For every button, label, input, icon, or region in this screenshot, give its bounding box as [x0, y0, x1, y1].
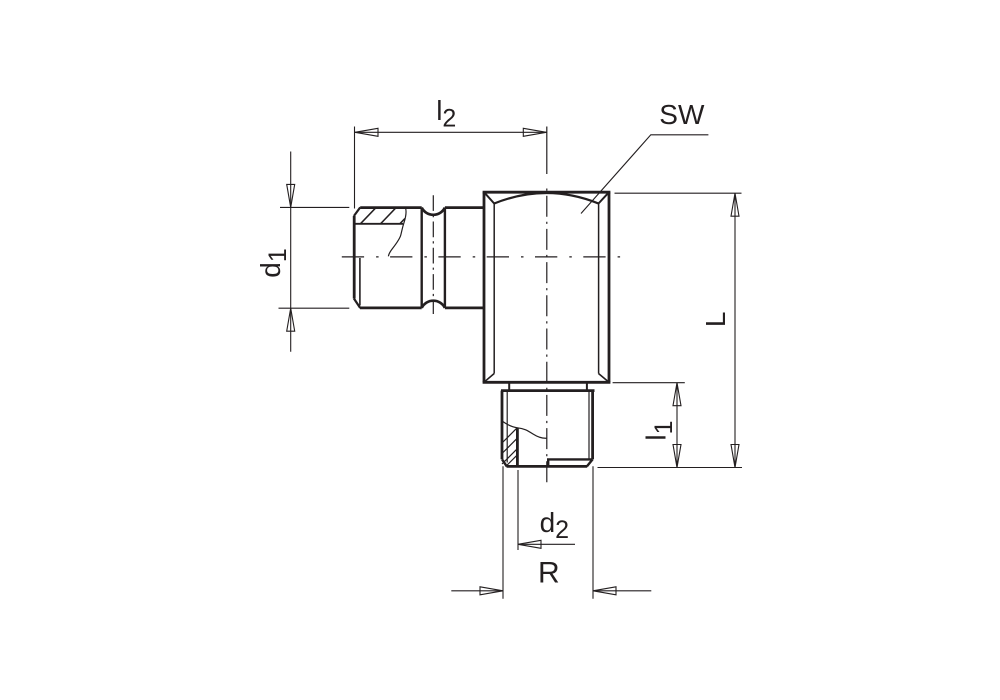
svg-text:d2: d2: [540, 507, 569, 544]
svg-text:l2: l2: [436, 95, 456, 132]
svg-text:SW: SW: [659, 99, 705, 130]
svg-text:l1: l1: [641, 421, 678, 441]
svg-text:L: L: [700, 312, 731, 328]
svg-text:d1: d1: [255, 248, 292, 277]
svg-text:R: R: [538, 557, 560, 590]
